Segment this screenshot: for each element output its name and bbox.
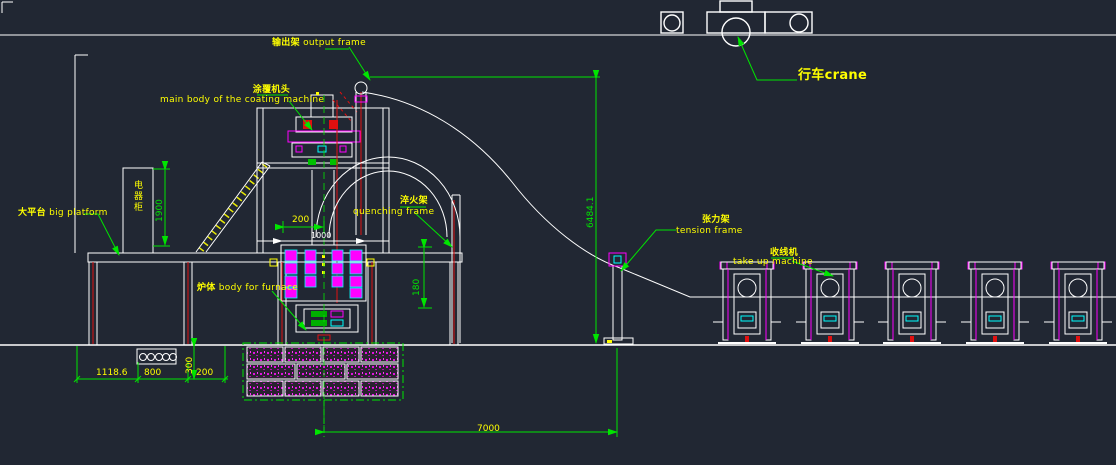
dim-pit-depth: 300 xyxy=(186,357,195,374)
stairs xyxy=(196,162,270,252)
big-platform-label: 大平台 big platform xyxy=(18,208,108,218)
dim-tower-height: 6484.1 xyxy=(587,197,596,229)
dim-takeup-span: 7000 xyxy=(477,425,500,434)
dim-cabinet-height: 1900 xyxy=(156,199,165,222)
dim-base-right: 200 xyxy=(196,369,213,378)
tension-frame-label-zh: 张力架 xyxy=(702,215,730,225)
left-wall-column xyxy=(75,55,88,253)
quenching-frame-label-zh: 淬火架 xyxy=(400,196,428,206)
dim-base-left: 1118.6 xyxy=(96,369,128,378)
output-frame-label: 输出架 output frame xyxy=(272,38,366,48)
crane-label: 行车crane xyxy=(798,71,867,81)
cad-drawing-viewport[interactable]: 行车crane 输出架 output frame 涂覆机头 main body … xyxy=(0,0,1116,465)
foundation xyxy=(243,343,403,400)
dim-head-offset: 200 xyxy=(292,216,309,225)
tension-frame-stand xyxy=(604,253,633,344)
take-up-machine-label-en: take up machine xyxy=(733,257,813,267)
electrical-cabinet-label: 电器柜 xyxy=(131,180,142,242)
dim-platform-clearance: 180 xyxy=(413,279,422,296)
dim-furnace-width: 1000 xyxy=(311,231,331,240)
quenching-frame-label-en: quenching frame xyxy=(353,207,434,217)
quenching-frame-column xyxy=(452,195,460,343)
drawing-geometry xyxy=(0,0,1116,465)
main-body-label: 涂覆机头 main body of the coating machine xyxy=(160,85,290,105)
furnace-label: 炉体 body for furnace xyxy=(197,283,298,293)
take-up-machines xyxy=(713,262,1112,343)
tension-frame-label-en: tension frame xyxy=(676,226,743,236)
crane-trolley xyxy=(661,1,812,46)
dim-base-mid: 800 xyxy=(144,369,161,378)
big-platform xyxy=(88,200,462,345)
cable-coil xyxy=(137,349,177,364)
ucs-corner-mark xyxy=(2,2,13,13)
furnace-base-table xyxy=(296,305,358,340)
